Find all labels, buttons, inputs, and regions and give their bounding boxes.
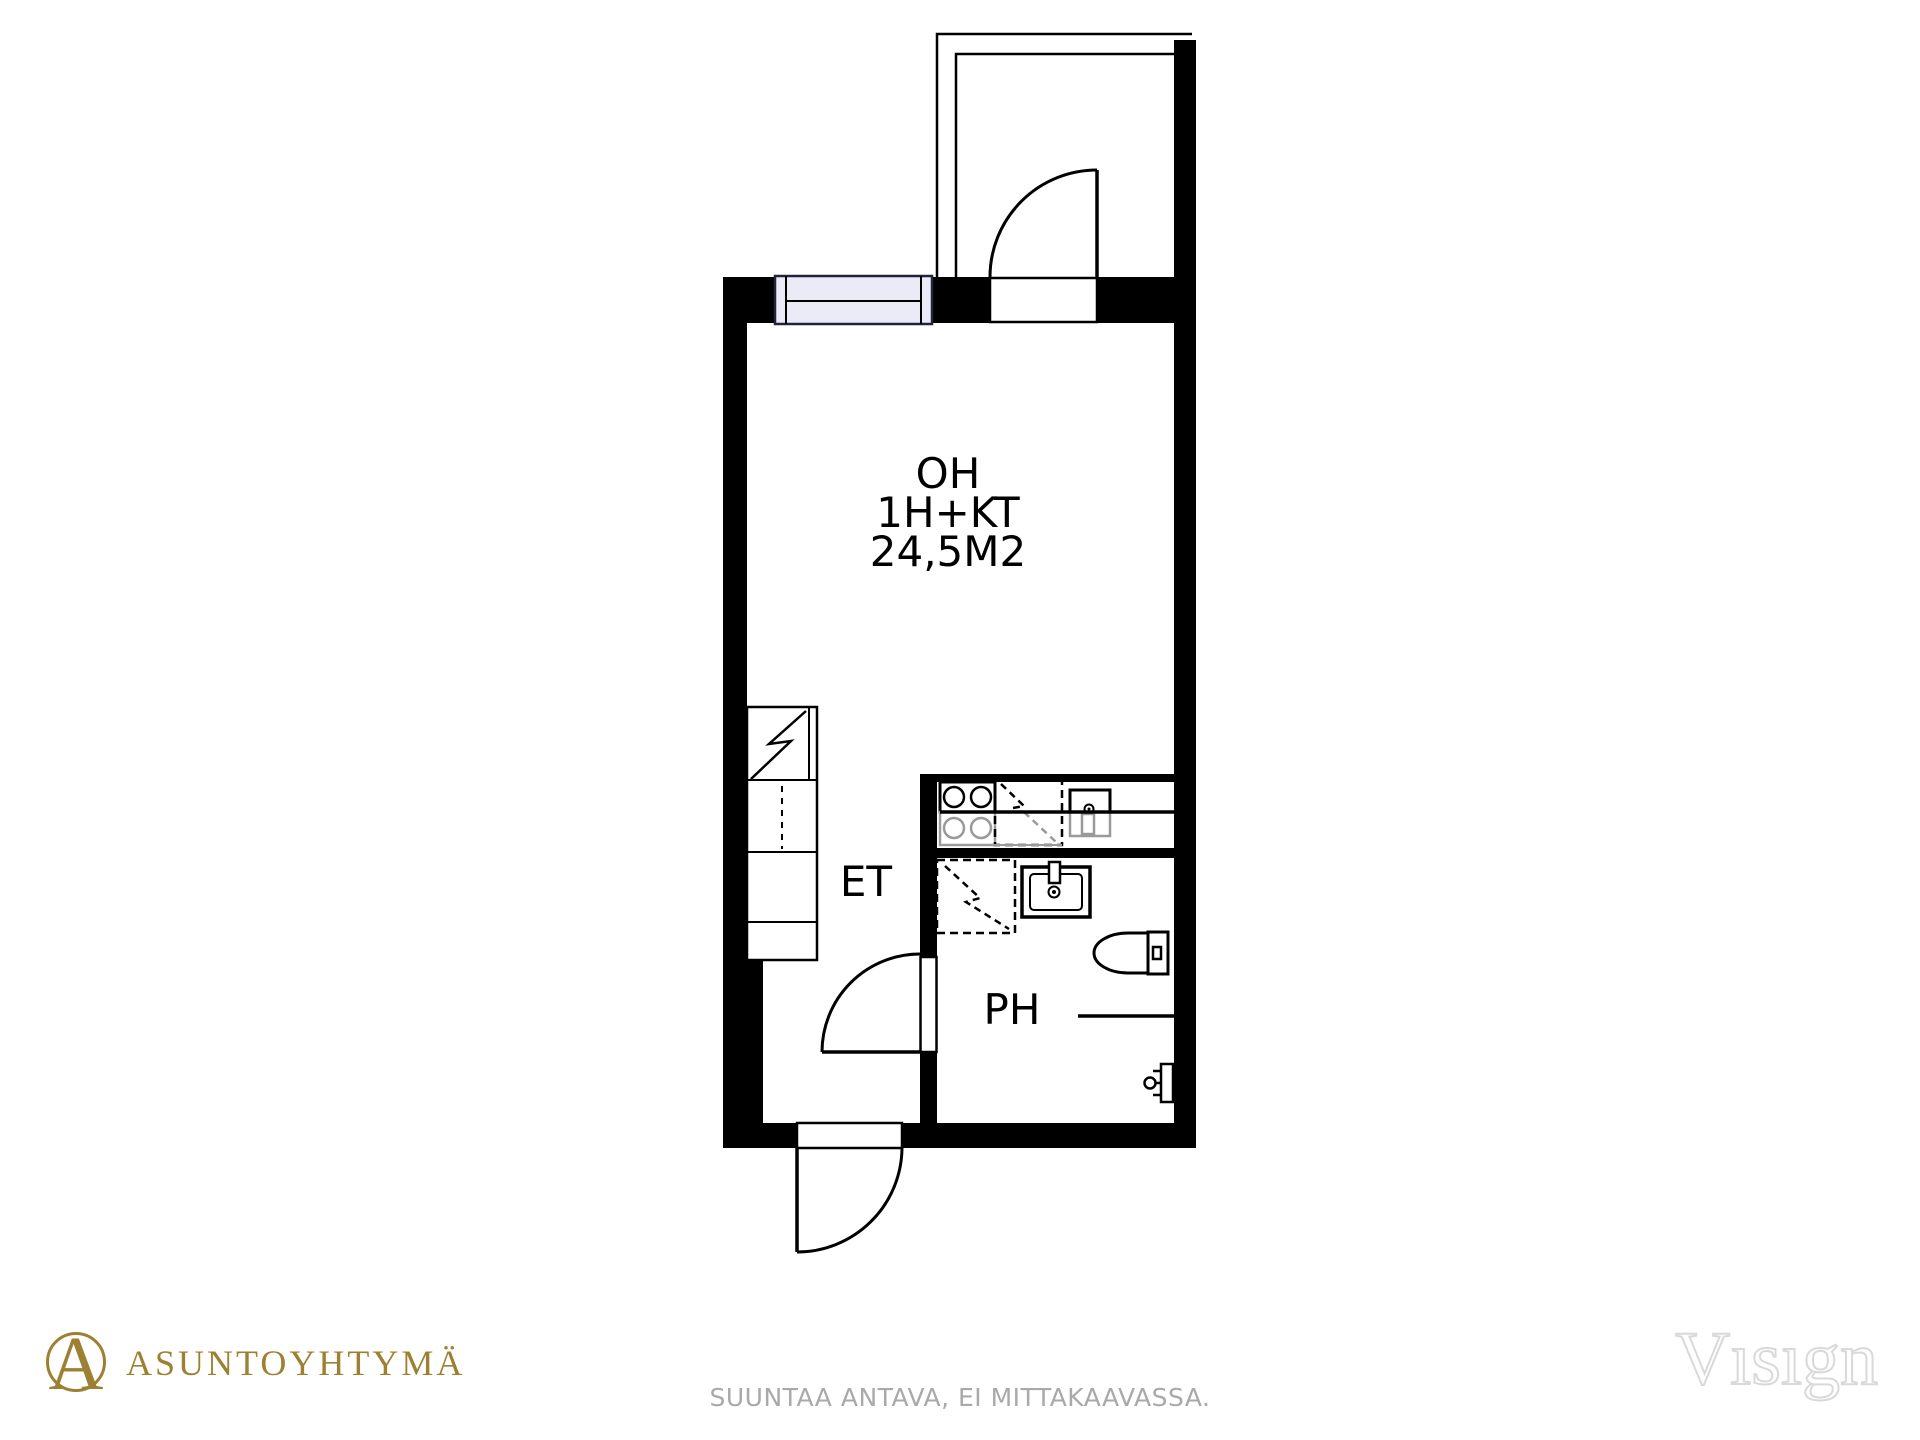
room-area: 24,5M2 (798, 532, 1098, 571)
kitchenette (940, 779, 1174, 845)
toilet-icon (1094, 932, 1168, 974)
bathroom-label: PH (962, 990, 1062, 1029)
living-room-label: OH 1H+KT 24,5M2 (798, 454, 1098, 571)
balcony-door-icon (990, 170, 1097, 322)
brand-name: ASUNTOYHTYMÄ (126, 1342, 465, 1384)
walls (723, 40, 1196, 1148)
watermark-logo: Vısıgn (1675, 1316, 1878, 1403)
water-valve-icon (1145, 1064, 1174, 1102)
hallway-closets (747, 707, 817, 960)
window-icon (775, 276, 932, 324)
shower-reservation-icon (937, 860, 1015, 933)
entrance-door-icon (797, 1123, 902, 1252)
disclaimer-text: SUUNTAA ANTAVA, EI MITTAKAAVASSA. (0, 1383, 1920, 1412)
bathroom-fixtures (937, 860, 1174, 1102)
balcony (937, 34, 1192, 277)
floorplan-drawing (0, 0, 1920, 1440)
entry-hall-label: ET (816, 862, 916, 901)
bathroom-sink-icon (1022, 862, 1090, 917)
bathroom-door-icon (822, 954, 937, 1052)
floorplan-page: OH 1H+KT 24,5M2 ET PH A ASUNTOYHTYMÄ SUU… (0, 0, 1920, 1440)
